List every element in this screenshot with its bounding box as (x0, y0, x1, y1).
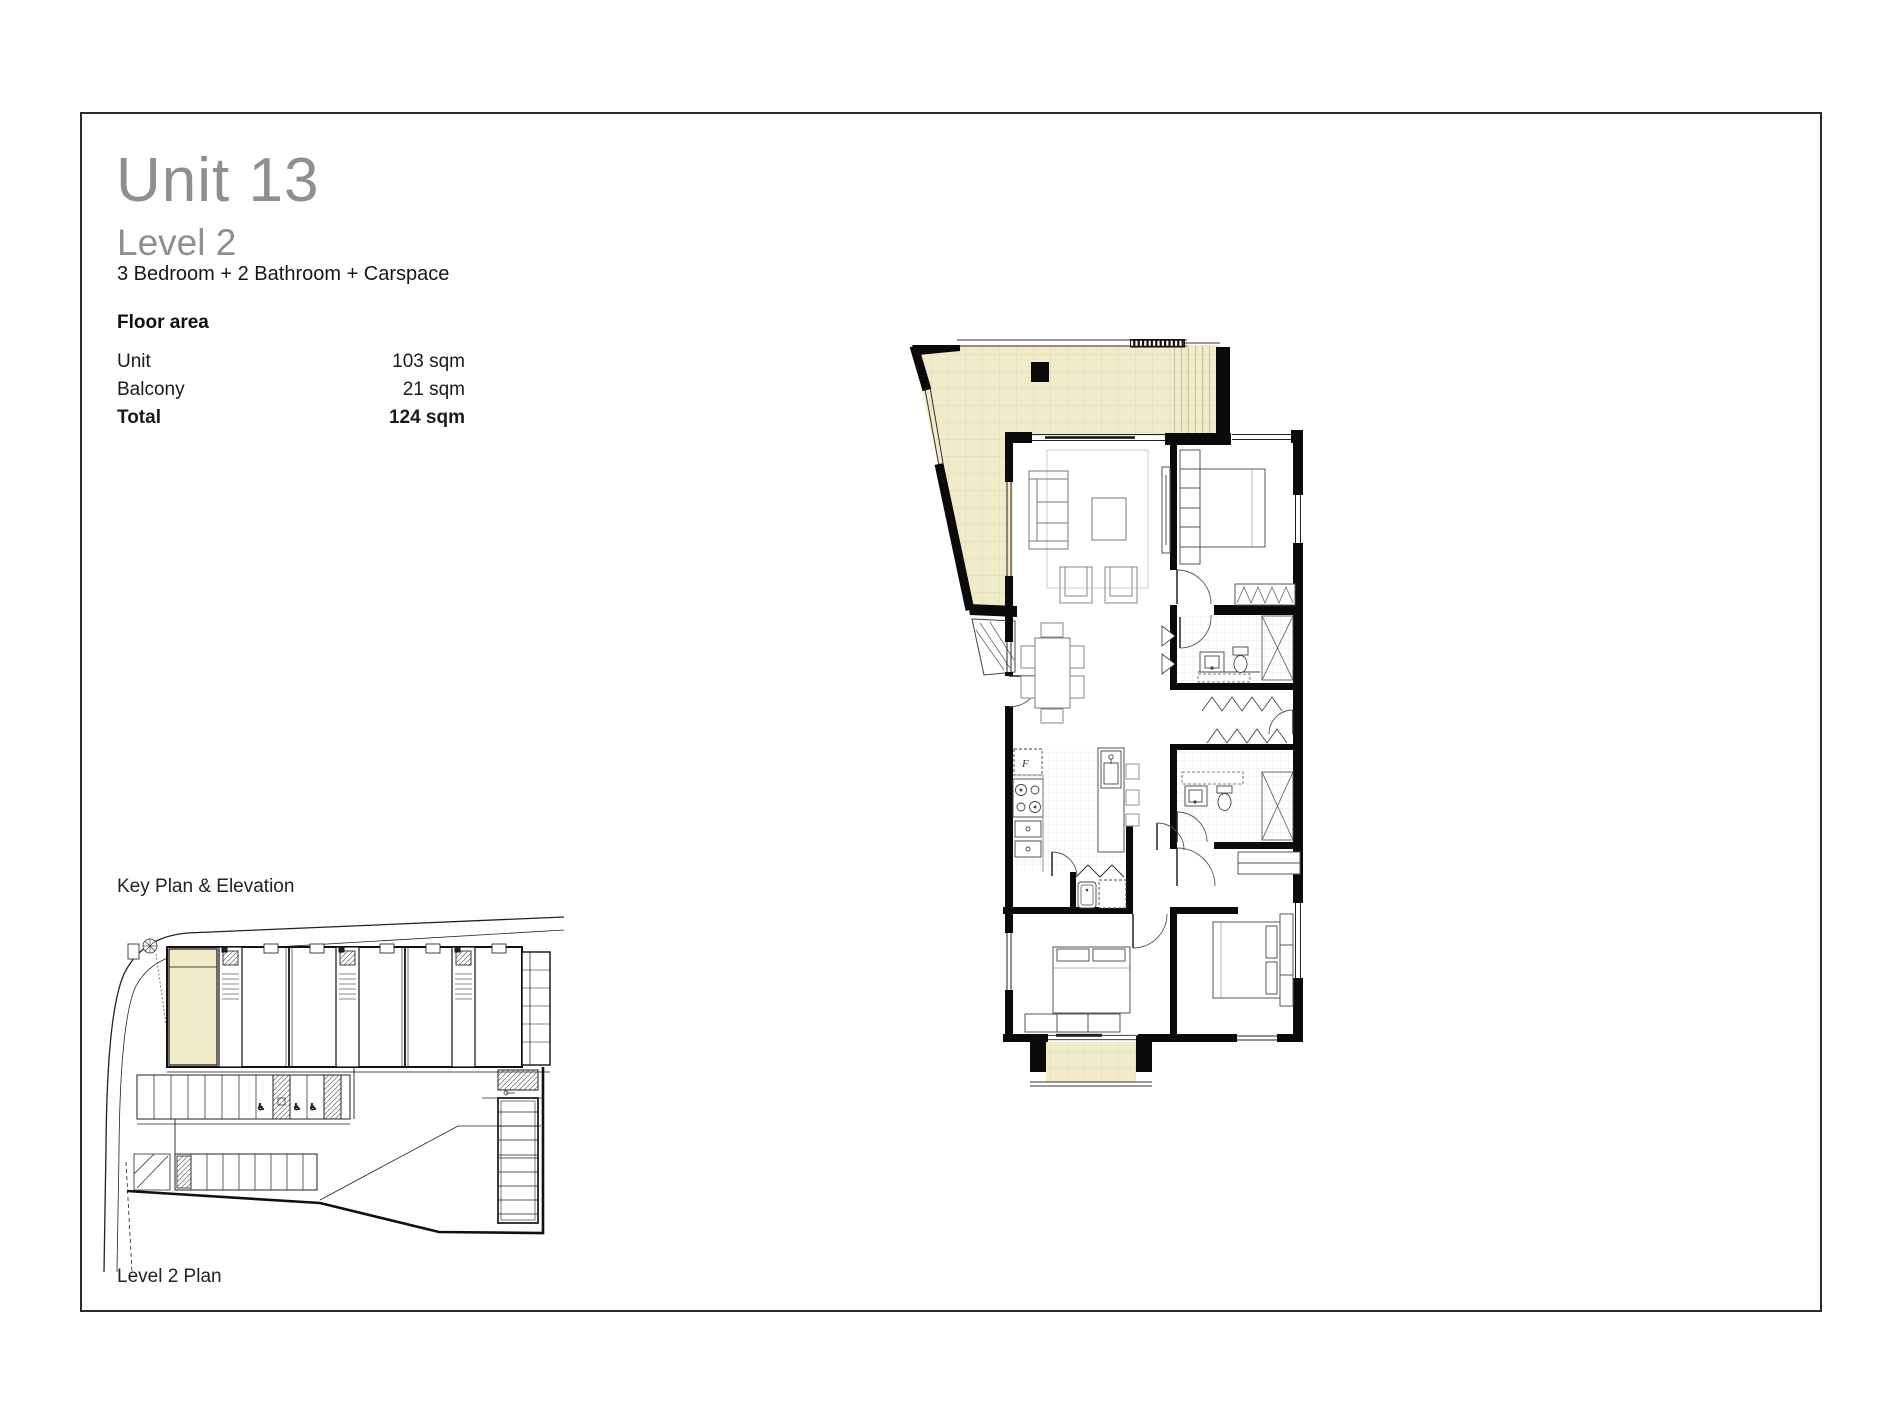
vanity (1185, 786, 1207, 806)
stair-core (452, 947, 475, 1067)
coffee-table (1092, 498, 1126, 540)
row-value: 103 sqm (392, 350, 465, 378)
shower (1262, 772, 1293, 840)
bedroom-3 (1025, 914, 1167, 1032)
bed (1200, 469, 1265, 547)
dining-table (1035, 638, 1070, 708)
bedroom-3-door (1133, 914, 1167, 948)
bedroom-1-door (1177, 570, 1211, 604)
annex-block (522, 952, 550, 1065)
bedroom-2-door (1177, 848, 1215, 886)
hall-door (1269, 710, 1293, 734)
stair-core (336, 947, 359, 1067)
toilet (1217, 786, 1232, 811)
robe (1238, 852, 1300, 874)
bar-stools (1126, 764, 1139, 826)
floor-area-table: Unit 103 sqm Balcony 21 sqm Total 124 sq… (117, 350, 465, 434)
kitchen-area: F (1013, 748, 1139, 876)
floor-area-row-balcony: Balcony 21 sqm (117, 378, 465, 406)
row-label: Unit (117, 350, 151, 378)
bedroom-1 (1177, 450, 1295, 605)
bench (1025, 1014, 1120, 1032)
bottom-balcony (1030, 1036, 1152, 1086)
dining-area (1021, 623, 1084, 723)
shower (1262, 616, 1293, 680)
floor-area-heading: Floor area (117, 312, 209, 334)
row-label: Total (117, 406, 161, 434)
bedroom-2 (1177, 848, 1300, 1006)
fridge-label: F (1021, 758, 1029, 770)
balcony-column (1031, 362, 1049, 382)
accessible-parking-icon: ♿ (309, 1103, 317, 1113)
stair-core (219, 947, 242, 1067)
tree-symbol (143, 939, 170, 1052)
floor-area-row-unit: Unit 103 sqm (117, 350, 465, 378)
living-room (1029, 450, 1170, 603)
unit-row (167, 944, 550, 1072)
row-label: Balcony (117, 378, 185, 406)
key-plan-label: Key Plan & Elevation (117, 876, 294, 898)
unit-floor-plan: F (880, 320, 1360, 1100)
robe (1235, 584, 1295, 605)
bathroom-2 (1177, 750, 1293, 842)
row-value: 124 sqm (389, 406, 465, 434)
sofa (1029, 471, 1068, 549)
balcony-deck-hatch (1171, 346, 1216, 435)
page-subtitle: Level 2 (117, 224, 236, 263)
washing-machine (1099, 880, 1126, 908)
page-title: Unit 13 (116, 148, 319, 213)
garage-column (498, 1070, 538, 1223)
armchair (1060, 567, 1092, 603)
floor-area-row-total: Total 124 sqm (117, 406, 465, 434)
toilet (1233, 647, 1248, 673)
highlighted-unit (169, 949, 217, 1065)
kitchen-sink (1101, 751, 1121, 788)
armchair (1105, 567, 1137, 603)
parking-row-1: ♿ ♿ ♿ (137, 1075, 350, 1119)
tv-unit (1162, 467, 1170, 553)
unit-description: 3 Bedroom + 2 Bathroom + Carspace (117, 263, 449, 286)
kitchen-island (1098, 748, 1124, 852)
key-plan-drawing: ♿ ♿ ♿ (92, 912, 572, 1280)
row-value: 21 sqm (403, 378, 465, 406)
cooktop (1013, 779, 1043, 817)
accessible-parking-icon: ♿ (257, 1103, 265, 1113)
bathroom-1 (1177, 615, 1293, 683)
accessible-parking-icon: ♿ (293, 1103, 301, 1113)
parking-row-2 (134, 1154, 317, 1190)
